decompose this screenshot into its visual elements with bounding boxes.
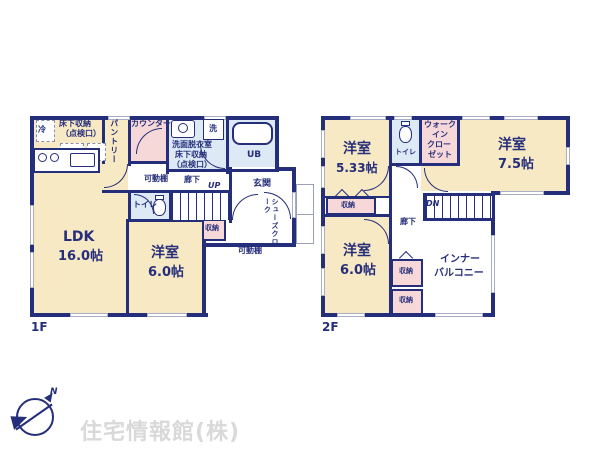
stairs-up bbox=[172, 193, 229, 220]
wall bbox=[457, 116, 460, 165]
label-bedroom-533-area: 5.33帖 bbox=[336, 162, 378, 175]
compass-icon: N bbox=[10, 390, 58, 442]
wall bbox=[423, 218, 494, 221]
label-underfloor-2: （点検口） bbox=[61, 130, 101, 139]
label-stairs-down: DN bbox=[426, 200, 439, 209]
door-arc bbox=[232, 194, 258, 220]
label-bedroom-60-area: 6.0帖 bbox=[340, 264, 376, 278]
label-balcony-1: インナー bbox=[440, 254, 480, 265]
bathtub-icon bbox=[232, 122, 273, 145]
stove-burner-icon bbox=[50, 153, 59, 162]
balcony-window bbox=[435, 313, 483, 317]
window bbox=[147, 313, 187, 317]
label-wic-4: ゼット bbox=[428, 151, 452, 160]
window bbox=[30, 252, 34, 288]
floor1-tag: 1F bbox=[31, 320, 48, 334]
label-washroom-2: 床下収納 bbox=[175, 151, 207, 160]
wall bbox=[229, 167, 232, 193]
toilet-tank-icon bbox=[401, 121, 410, 126]
label-toilet-1f: トイレ bbox=[133, 201, 157, 210]
label-bedroom-1f-area: 6.0帖 bbox=[148, 266, 184, 280]
label-wic-1: ウォーク bbox=[424, 121, 456, 130]
label-counter: カウンター bbox=[131, 120, 171, 129]
window bbox=[500, 191, 544, 195]
window bbox=[321, 268, 325, 296]
window bbox=[321, 166, 325, 188]
wall bbox=[128, 161, 169, 164]
wall bbox=[275, 116, 279, 171]
label-entrance: 玄関 bbox=[253, 180, 271, 190]
label-balcony-2: バルコニー bbox=[434, 268, 484, 279]
window bbox=[321, 226, 325, 254]
label-storage-1f: 収納 bbox=[205, 225, 219, 233]
label-wic-3: クロー bbox=[427, 141, 451, 150]
window bbox=[350, 116, 386, 120]
label-underfloor-1: 床下収納 bbox=[59, 120, 91, 129]
label-ldk: LDK bbox=[63, 230, 94, 245]
label-bedroom-1f: 洋室 bbox=[151, 246, 179, 261]
washbasin-bowl-icon bbox=[178, 123, 188, 133]
window bbox=[566, 147, 570, 165]
label-washroom-1: 洗面脱衣室 bbox=[172, 141, 212, 150]
label-bedroom-75: 洋室 bbox=[498, 138, 526, 153]
window bbox=[394, 116, 412, 120]
label-toilet-2f: トイレ bbox=[395, 149, 416, 157]
label-storage-2f-b: 収納 bbox=[399, 268, 413, 276]
label-hallway-2f: 廊下 bbox=[400, 218, 416, 227]
compass-north-label: N bbox=[50, 388, 58, 398]
label-wic-2: イン bbox=[432, 131, 448, 140]
label-shelf-hall: 可動棚 bbox=[144, 175, 168, 184]
wall bbox=[202, 241, 206, 317]
window bbox=[321, 130, 325, 158]
stove-burner-icon bbox=[38, 153, 47, 162]
label-pantry: パントリー bbox=[109, 119, 118, 171]
label-hallway-1f: 廊下 bbox=[184, 176, 200, 185]
door-arc bbox=[396, 166, 418, 188]
toilet-icon bbox=[399, 126, 412, 143]
label-washer: 洗 bbox=[209, 125, 217, 134]
company-watermark: 住宅情報館(株) bbox=[80, 414, 240, 446]
sink-icon bbox=[70, 153, 95, 167]
wall bbox=[226, 116, 229, 174]
window bbox=[70, 313, 108, 317]
label-washroom-3: （点検口） bbox=[172, 161, 212, 170]
label-bedroom-60: 洋室 bbox=[343, 244, 371, 259]
room-bedroom-533 bbox=[325, 118, 389, 198]
label-shelf-entry: 可動棚 bbox=[238, 247, 262, 256]
window bbox=[30, 205, 34, 245]
label-shoe-closet: シューズクローク bbox=[256, 198, 278, 250]
wall bbox=[126, 219, 129, 317]
window bbox=[504, 116, 538, 120]
label-bedroom-533: 洋室 bbox=[343, 142, 371, 157]
label-bedroom-75-area: 7.5帖 bbox=[498, 158, 534, 172]
window bbox=[337, 313, 365, 317]
wall bbox=[128, 190, 131, 222]
label-unit-bath: UB bbox=[247, 151, 261, 161]
label-fridge: 冷 bbox=[38, 126, 46, 135]
porch-step-line bbox=[296, 214, 314, 215]
label-ldk-area: 16.0帖 bbox=[58, 250, 103, 264]
floor2-tag: 2F bbox=[322, 320, 339, 334]
wall bbox=[419, 116, 422, 165]
label-storage-2f-c: 収納 bbox=[399, 297, 413, 305]
label-stairs-up: UP bbox=[208, 182, 220, 191]
label-storage-2f-a: 収納 bbox=[341, 202, 355, 210]
window bbox=[462, 116, 490, 120]
balcony-window bbox=[491, 235, 495, 293]
floor-plan-canvas: 冷 床下収納 （点検口） パントリー カウンター 洗面脱衣室 床下収納 （点検口… bbox=[0, 0, 600, 450]
